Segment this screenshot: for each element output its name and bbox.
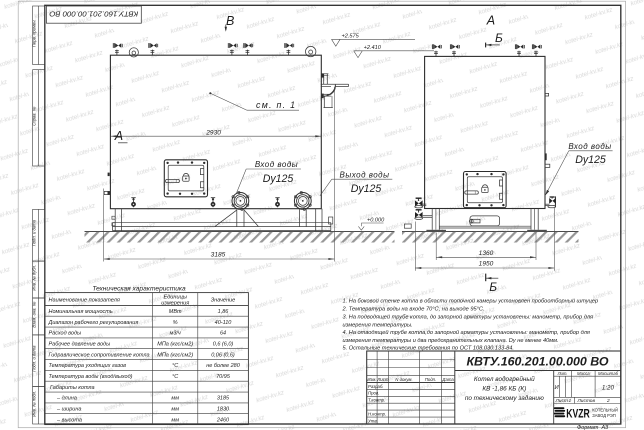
svg-text:по техническому заданию: по техническому заданию	[465, 394, 544, 402]
svg-text:Т.контр.: Т.контр.	[368, 398, 385, 403]
svg-text:Dy125: Dy125	[263, 173, 294, 185]
svg-text:Б: Б	[489, 280, 497, 294]
svg-text:Изм.: Изм.	[367, 377, 376, 382]
svg-text:1: 1	[569, 398, 572, 404]
svg-text:Котел водогрейный: Котел водогрейный	[474, 375, 535, 383]
svg-text:Вход воды: Вход воды	[568, 142, 611, 151]
svg-text:Утв.: Утв.	[368, 418, 378, 423]
svg-text:Техническая характеристика: Техническая характеристика	[92, 286, 186, 293]
svg-text:+2.575: +2.575	[342, 33, 360, 39]
svg-text:Dy125: Dy125	[351, 183, 382, 195]
svg-text:70/95: 70/95	[216, 374, 231, 380]
svg-text:1,86: 1,86	[218, 309, 230, 315]
svg-text:измерения температуры и два пр: измерения температуры и два предохраните…	[343, 338, 559, 344]
svg-text:А: А	[114, 129, 123, 143]
svg-text:1360: 1360	[479, 250, 494, 257]
svg-text:КОТЕЛЬНЫЙ: КОТЕЛЬНЫЙ	[592, 408, 618, 413]
svg-text:ЗАВОД РЭП: ЗАВОД РЭП	[592, 413, 615, 418]
svg-text:+0.000: +0.000	[367, 217, 385, 223]
svg-text:Масштаб: Масштаб	[598, 371, 619, 376]
svg-text:Подп.: Подп.	[425, 377, 436, 382]
svg-text:Дата: Дата	[441, 377, 454, 382]
svg-text:1. На боковой стенке котла в: 1. На боковой стенке котла в области топ…	[343, 297, 599, 304]
svg-text:Формат: Формат	[577, 425, 599, 430]
svg-text:мм: мм	[171, 417, 179, 423]
svg-text:1:20: 1:20	[602, 385, 615, 392]
svg-text:Температура уходящих газов: Температура уходящих газов	[49, 363, 127, 369]
svg-text:Взам. инв. №: Взам. инв. №	[32, 301, 37, 327]
svg-text:Температура воды (вход/выход): Температура воды (вход/выход)	[49, 374, 133, 380]
svg-text:3185: 3185	[217, 396, 230, 402]
svg-text:Расход воды: Расход воды	[49, 331, 82, 337]
svg-text:40-110: 40-110	[215, 320, 233, 326]
svg-text:– длина: – длина	[56, 396, 77, 402]
svg-text:– высота: – высота	[56, 417, 82, 423]
svg-text:Лит.: Лит.	[557, 371, 568, 376]
svg-text:°С: °С	[172, 363, 178, 369]
svg-text:Гидравлическое сопротивление к: Гидравлическое сопротивление котла	[49, 352, 150, 358]
svg-text:N докум.: N докум.	[395, 377, 412, 382]
svg-text:Подп. и дата: Подп. и дата	[32, 345, 37, 372]
svg-text:измерения температуры.: измерения температуры.	[343, 322, 413, 328]
svg-text:1830: 1830	[217, 407, 230, 413]
svg-text:2: 2	[606, 398, 610, 404]
svg-text:2. Температура воды на входе: 2. Температура воды на входе 70°С, на вы…	[342, 306, 485, 312]
svg-text:см. п. 1: см. п. 1	[256, 100, 296, 110]
svg-text:64: 64	[220, 331, 226, 337]
svg-text:3185: 3185	[211, 252, 226, 259]
svg-text:Масса: Масса	[577, 371, 590, 376]
svg-text:МПа (кгс/см2): МПа (кгс/см2)	[157, 352, 193, 358]
svg-text:Перв. примен.: Перв. примен.	[32, 19, 37, 47]
svg-text:Габариты котла: Габариты котла	[50, 385, 95, 391]
svg-text:+2.410: +2.410	[364, 45, 382, 51]
svg-text:2460: 2460	[216, 417, 230, 423]
svg-text:– ширина: – ширина	[56, 407, 81, 413]
svg-text:Листов: Листов	[577, 398, 596, 404]
svg-text:0,06 (0,6): 0,06 (0,6)	[211, 352, 235, 358]
svg-text:KVZR: KVZR	[566, 406, 590, 420]
svg-text:В: В	[226, 14, 234, 28]
svg-text:Б: Б	[495, 31, 503, 45]
svg-text:Справ. №: Справ. №	[32, 106, 37, 125]
svg-text:Лист: Лист	[555, 398, 568, 404]
svg-text:1950: 1950	[479, 261, 494, 268]
svg-text:%: %	[173, 320, 178, 326]
svg-text:мм: мм	[171, 396, 179, 402]
svg-text:Подп. и дата: Подп. и дата	[32, 219, 37, 246]
svg-text:КВ -1,86 КБ (К): КВ -1,86 КБ (К)	[482, 386, 526, 393]
svg-text:Инв. № дубл.: Инв. № дубл.	[32, 265, 37, 291]
svg-text:Лист: Лист	[376, 377, 388, 382]
svg-text:МПа (кгс/см2): МПа (кгс/см2)	[157, 342, 193, 348]
svg-text:3. На подводящей трубе котла,: 3. На подводящей трубе котла, до запорно…	[343, 313, 594, 320]
svg-text:Н.контр.: Н.контр.	[368, 412, 386, 417]
svg-text:Dy125: Dy125	[575, 154, 606, 166]
svg-text:МВт: МВт	[169, 309, 182, 315]
svg-text:Значение: Значение	[211, 298, 236, 304]
svg-text:Инв. № подл.: Инв. № подл.	[32, 391, 37, 417]
svg-text:Рабочее давление воды: Рабочее давление воды	[49, 342, 111, 348]
svg-text:КВТУ.160.201.00.000 ВО: КВТУ.160.201.00.000 ВО	[49, 10, 138, 19]
svg-text:Пров.: Пров.	[368, 391, 379, 396]
svg-text:м3/ч: м3/ч	[170, 331, 181, 337]
svg-text:4. На отводящей трубе котла,д: 4. На отводящей трубе котла,до запорной …	[343, 329, 590, 336]
svg-text:не более 280: не более 280	[206, 363, 241, 369]
svg-text:Вход воды: Вход воды	[255, 160, 298, 169]
svg-text:2930: 2930	[205, 129, 221, 136]
svg-text:КВТУ.160.201.00.000 ВО: КВТУ.160.201.00.000 ВО	[466, 355, 608, 369]
svg-text:А3: А3	[601, 425, 609, 430]
svg-text:мм: мм	[171, 407, 179, 413]
svg-text:°С: °С	[172, 374, 178, 380]
svg-text:Выход воды: Выход воды	[340, 170, 390, 179]
svg-text:0,6 (6,0): 0,6 (6,0)	[213, 342, 234, 348]
svg-text:Диапазон рабочего регулировани: Диапазон рабочего регулирования	[48, 320, 139, 326]
svg-text:Номинальная мощность: Номинальная мощность	[49, 309, 113, 315]
svg-text:Наименование показателя: Наименование показателя	[49, 298, 120, 304]
svg-text:А: А	[486, 13, 495, 27]
svg-text:Разраб.: Разраб.	[368, 384, 384, 389]
svg-text:измерения: измерения	[161, 300, 189, 306]
